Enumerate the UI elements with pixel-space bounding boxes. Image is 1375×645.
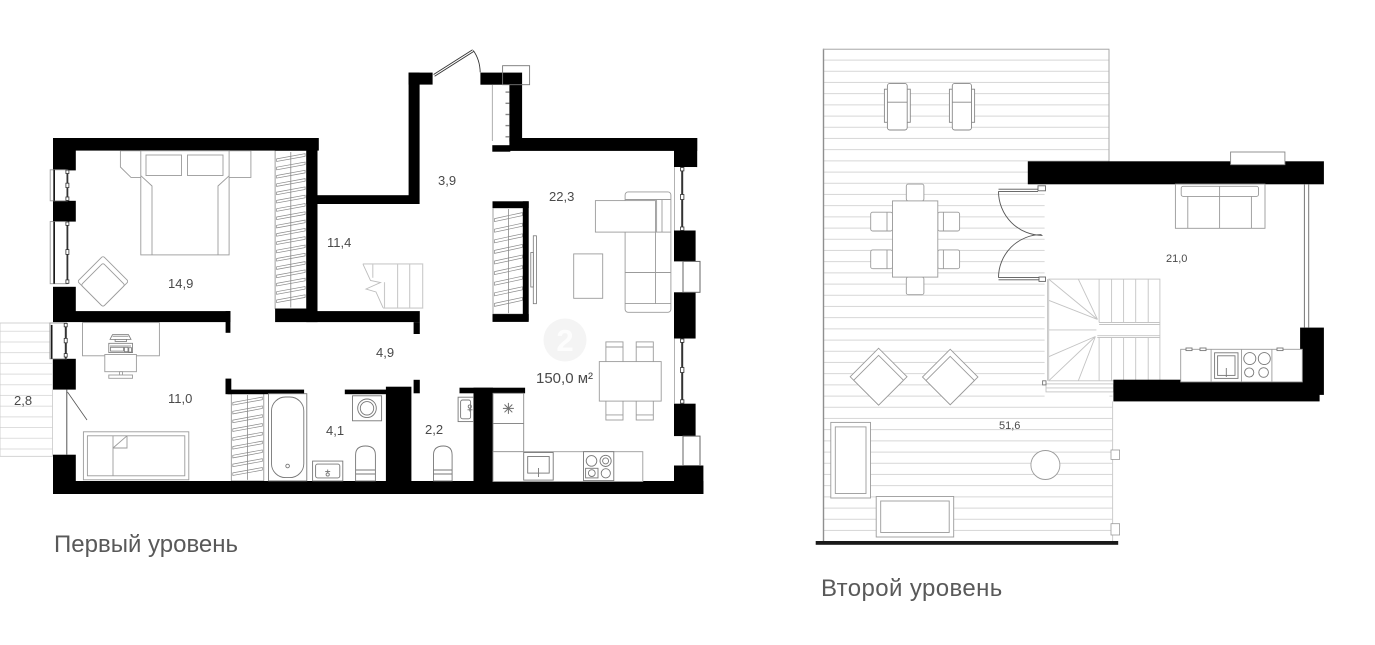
svg-text:22,3: 22,3 (549, 189, 574, 204)
svg-text:4,9: 4,9 (376, 345, 394, 360)
svg-text:14,9: 14,9 (168, 276, 193, 291)
svg-text:2,8: 2,8 (14, 393, 32, 408)
svg-text:2,2: 2,2 (425, 422, 443, 437)
svg-text:3,9: 3,9 (438, 173, 456, 188)
svg-text:Первый уровень: Первый уровень (54, 531, 238, 558)
svg-text:21,0: 21,0 (1166, 253, 1187, 265)
svg-text:Второй уровень: Второй уровень (821, 575, 1003, 602)
svg-text:11,4: 11,4 (327, 235, 351, 250)
svg-text:4,1: 4,1 (326, 423, 344, 438)
svg-text:150,0 м²: 150,0 м² (536, 370, 593, 387)
svg-text:2: 2 (556, 323, 573, 358)
svg-text:11,0: 11,0 (168, 391, 192, 406)
svg-text:51,6: 51,6 (999, 420, 1020, 432)
